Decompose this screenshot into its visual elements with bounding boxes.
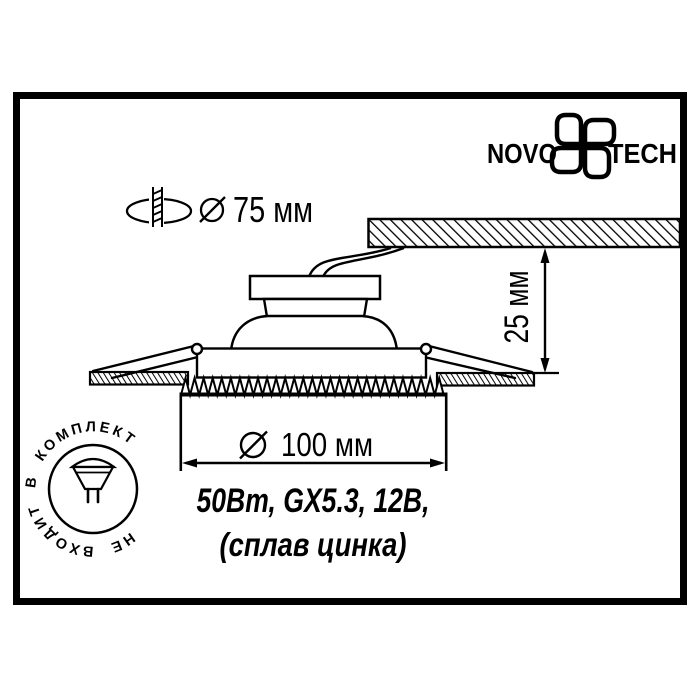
cutout-note: 75 мм — [127, 186, 313, 230]
dimension-trim-diameter: 100 мм — [182, 426, 445, 468]
ceiling-cut-left — [90, 372, 188, 385]
spec-line-1: 50Вт, GX5.3, 12В, — [197, 482, 430, 520]
brand-logo: NOVO TECH — [487, 115, 677, 177]
ceiling-section — [369, 219, 681, 247]
ceiling-cut-right — [437, 373, 534, 386]
diagram-page: NOVO TECH 75 мм — [0, 0, 700, 700]
diameter-icon-75 — [200, 197, 225, 222]
dimension-recess-depth: 25 мм — [498, 248, 559, 373]
recess-depth-label: 25 мм — [498, 271, 536, 344]
logo-text-novo: NOVO — [487, 138, 557, 169]
supply-wire — [323, 248, 404, 277]
trim-diameter-label: 100 мм — [281, 426, 373, 463]
lamp-holder-block — [250, 276, 380, 299]
spec-line-2: (сплав цинка) — [220, 526, 407, 563]
not-included-stamp: НЕ ВХОДИТ В КОМПЛЕКТ — [23, 419, 139, 559]
arrowhead-up-icon — [541, 248, 550, 263]
diameter-icon-100 — [240, 432, 267, 459]
drill-hole-icon — [127, 186, 191, 228]
logo-text-tech: TECH — [608, 138, 677, 169]
arrowhead-down-icon — [541, 358, 550, 373]
spec-text: 50Вт, GX5.3, 12В, (сплав цинка) — [197, 482, 430, 563]
logo-pinwheel-icon — [552, 115, 614, 177]
arrowhead-right-icon — [430, 459, 445, 468]
clip-pivot — [192, 344, 202, 354]
cutout-diameter-label: 75 мм — [233, 189, 313, 230]
fixture-dome — [231, 316, 397, 351]
trim-ring-body — [197, 349, 426, 378]
arrowhead-left-icon — [182, 459, 197, 468]
spotlight-technical-diagram: NOVO TECH 75 мм — [0, 0, 700, 700]
fixture-neck — [264, 299, 367, 317]
clip-pivot — [421, 344, 431, 354]
serrated-flange — [181, 378, 444, 395]
